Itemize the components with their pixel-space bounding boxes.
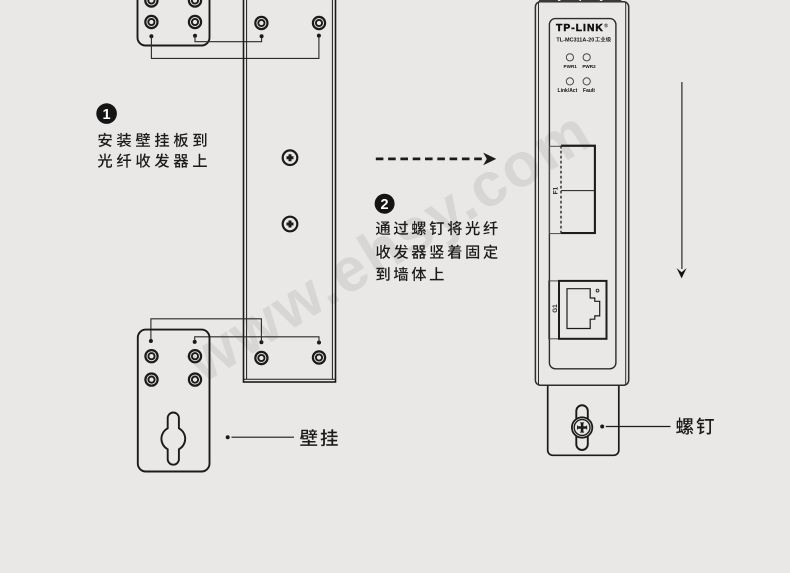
svg-text:G1: G1: [552, 304, 559, 313]
svg-text:PWR2: PWR2: [582, 64, 596, 69]
svg-text:1: 1: [103, 107, 111, 123]
svg-text:PWR1: PWR1: [564, 64, 578, 69]
svg-text:Link/Act: Link/Act: [558, 88, 578, 94]
svg-text:TL-MC311A-20: TL-MC311A-20: [556, 37, 594, 43]
svg-text:2: 2: [381, 197, 389, 213]
svg-text:TP-LINK: TP-LINK: [556, 23, 604, 34]
svg-text:®: ®: [604, 23, 608, 30]
svg-text:F1: F1: [552, 186, 559, 194]
svg-text:Fault: Fault: [583, 88, 595, 94]
